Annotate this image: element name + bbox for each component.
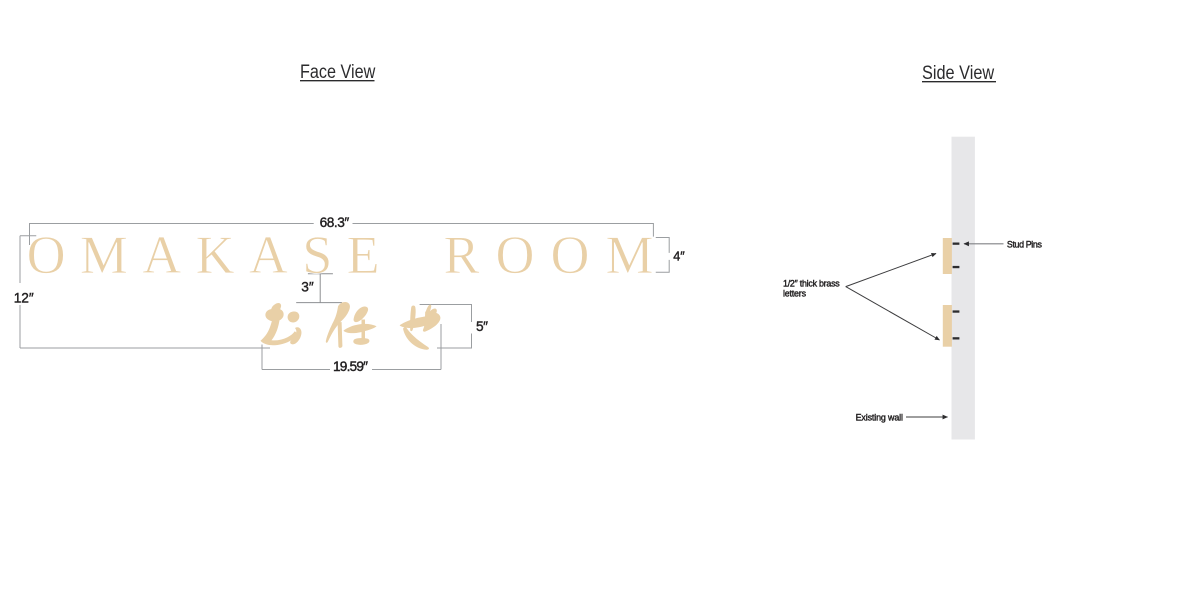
svg-text:4″: 4″ bbox=[673, 250, 685, 264]
svg-text:Stud Pins: Stud Pins bbox=[1007, 239, 1043, 249]
svg-text:12″: 12″ bbox=[14, 291, 34, 306]
svg-text:5″: 5″ bbox=[476, 319, 488, 334]
svg-text:Existing wall: Existing wall bbox=[856, 413, 903, 423]
svg-text:1/2″ thick brass: 1/2″ thick brass bbox=[783, 278, 840, 288]
svg-text:Side View: Side View bbox=[922, 62, 994, 84]
svg-text:19.59″: 19.59″ bbox=[333, 359, 368, 374]
svg-text:Face View: Face View bbox=[300, 61, 375, 83]
svg-text:ROOM: ROOM bbox=[444, 225, 654, 285]
svg-text:letters: letters bbox=[783, 289, 807, 299]
svg-text:OMAKASE: OMAKASE bbox=[27, 225, 380, 285]
